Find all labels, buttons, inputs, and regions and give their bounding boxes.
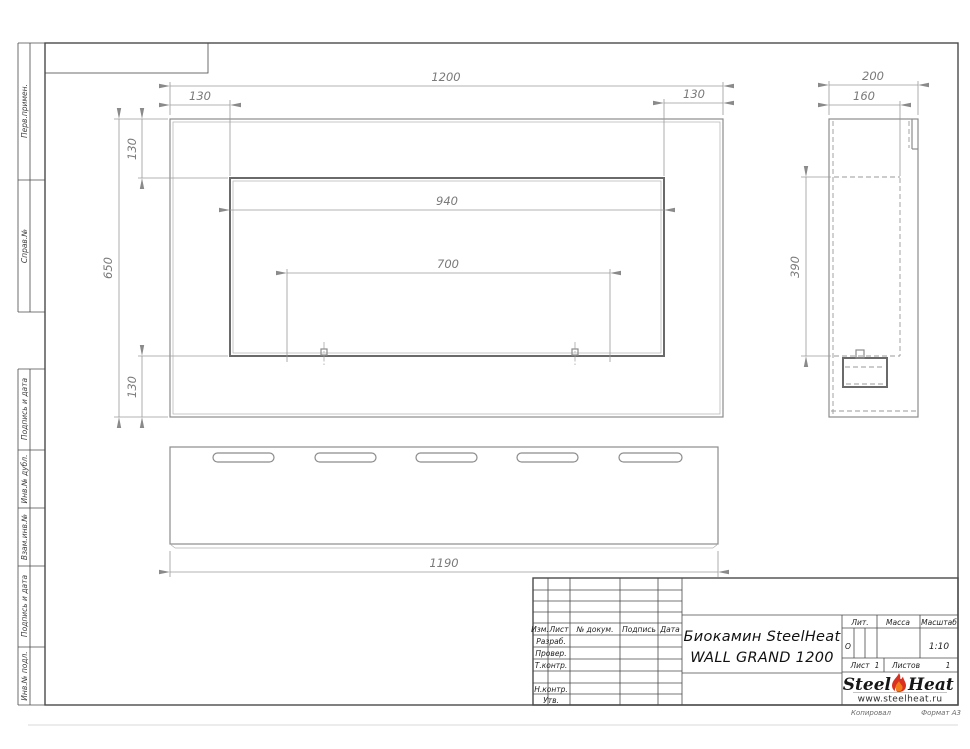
doc-title-line2: WALL GRAND 1200 [690,650,834,666]
tb-masshtab-header: Масштаб [921,618,957,627]
vent-slot-5 [619,453,682,462]
dim-front-burner-span: 700 [437,257,459,271]
doc-title-line1: Биокамин SteelHeat [684,629,842,645]
dim-side-depth: 200 [862,69,884,83]
margin-label-inv-podl: Инв.№ подл. [20,651,29,700]
dim-front-opening-width: 940 [436,194,458,208]
margin-label-vzam-inv: Взам.инв.№ [20,514,29,560]
tb-list-value: 1 [875,661,880,670]
title-block: Изм. Лист № докум. Подпись Дата Разраб. … [531,578,958,705]
tb-row-razrab: Разраб. [536,637,565,646]
vent-slot-1 [213,453,274,462]
tb-lit-header: Лит. [850,618,868,627]
tb-col-data: Дата [659,625,680,634]
tb-col-podpis: Подпись [622,625,656,634]
drawing-sheet: Перв.примен. Справ.№ Подпись и дата Инв.… [0,0,970,749]
footer-kopiroval: Копировал [851,709,892,717]
tb-masshtab-value: 1:10 [929,642,949,652]
bottom-view [170,447,718,548]
tb-row-nkontr: Н.контр. [534,685,568,694]
dim-front-top-offset: 130 [125,138,139,160]
footer-format: Формат А3 [921,709,961,717]
tb-col-doc: № докум. [576,625,614,634]
dim-side-opening-height: 390 [788,256,802,278]
tb-col-list: Лист [548,625,569,634]
margin-label-inv-dubl: Инв.№ дубл. [20,455,29,504]
tb-lit-value: О [845,642,851,651]
tb-massa-header: Масса [886,618,910,627]
side-view [829,119,918,417]
dim-front-overall-width: 1200 [431,70,460,84]
margin-label-podpis-data-2: Подпись и дата [20,575,29,638]
dim-front-top-left-offset: 130 [189,89,211,103]
dim-front-bottom-offset: 130 [125,376,139,398]
tb-row-tkontr: Т.контр. [535,661,568,670]
dim-front-top-right-offset: 130 [683,87,705,101]
vent-slot-3 [416,453,477,462]
bottom-view-dimensions: 1190 [170,551,718,577]
tb-row-utv: Утв. [543,696,559,705]
side-view-dimensions: 200 160 390 [788,69,918,356]
steelheat-logo: Steel Heat www.steelheat.ru [843,673,954,705]
side-burner-box [843,350,887,387]
tb-listov-value: 1 [946,661,951,670]
dim-bottom-length: 1190 [429,556,458,570]
dim-side-inner-depth: 160 [853,89,875,103]
logo-heat-text: Heat [907,675,954,695]
margin-label-podpis-data-1: Подпись и дата [20,378,29,441]
tb-row-prover: Провер. [535,649,566,658]
drawing-frame [45,43,958,705]
vent-slot-2 [315,453,376,462]
logo-site-text: www.steelheat.ru [858,695,943,705]
tb-listov-label: Листов [891,661,920,670]
tb-list-label: Лист [849,661,870,670]
top-left-stamp-box [45,43,208,73]
logo-steel-text: Steel [843,675,892,695]
drawing-canvas: Перв.примен. Справ.№ Подпись и дата Инв.… [0,0,970,749]
tb-col-izm: Изм. [531,625,549,634]
frame-footer: Копировал Формат А3 [851,709,961,717]
margin-label-sprav: Справ.№ [20,229,29,263]
flame-icon [892,673,906,692]
left-margin-boxes: Перв.примен. Справ.№ Подпись и дата Инв.… [18,43,45,705]
dim-front-overall-height: 650 [101,257,115,279]
margin-label-perv-primen: Перв.примен. [20,84,29,138]
vent-slot-4 [517,453,578,462]
